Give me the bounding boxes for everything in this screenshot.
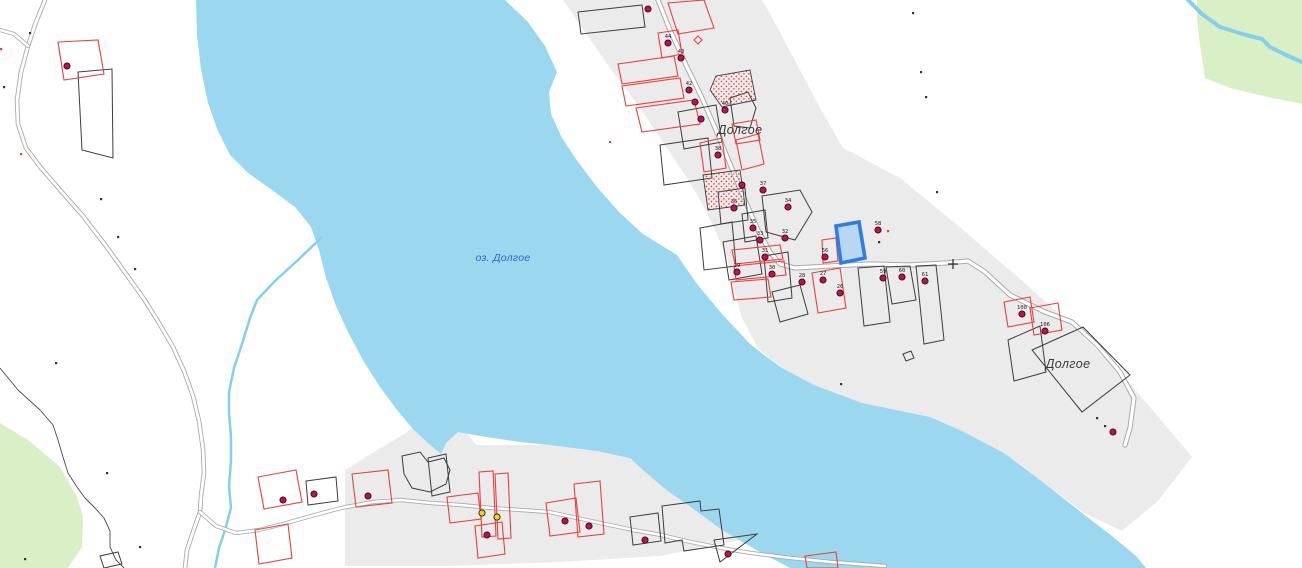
cadastral-point-label: 56 xyxy=(822,248,829,254)
cadastral-point-label: 33 xyxy=(757,231,764,237)
cadastral-point[interactable] xyxy=(762,254,768,260)
cadastral-point[interactable] xyxy=(822,254,828,260)
cadastral-point[interactable] xyxy=(645,6,651,12)
cadastral-point[interactable] xyxy=(820,277,826,283)
cadastral-point[interactable] xyxy=(922,278,928,284)
cadastral-point[interactable] xyxy=(479,510,485,516)
cadastral-point-label: 106 xyxy=(1040,322,1050,328)
cadastral-point-label: 42 xyxy=(686,81,693,87)
cadastral-point[interactable] xyxy=(880,275,886,281)
cadastral-point[interactable] xyxy=(837,290,843,296)
cadastral-point[interactable] xyxy=(1110,429,1116,435)
terrain-mark xyxy=(3,86,5,88)
settlement-label: Долгое xyxy=(716,123,763,137)
cadastral-point[interactable] xyxy=(642,537,648,543)
cadastral-point[interactable] xyxy=(311,491,317,497)
cadastral-point-label: 26 xyxy=(837,284,844,290)
terrain-mark xyxy=(878,241,880,243)
cadastral-point[interactable] xyxy=(875,227,881,233)
cadastral-point-label: 29 xyxy=(734,263,741,269)
terrain-mark xyxy=(887,230,889,232)
cadastral-point-label: 30 xyxy=(769,265,776,271)
cadastral-point[interactable] xyxy=(365,493,371,499)
terrain-mark xyxy=(925,96,927,98)
cadastral-point[interactable] xyxy=(725,551,731,557)
terrain-mark xyxy=(20,153,22,155)
cadastral-point-label: 28 xyxy=(799,273,806,279)
terrain-mark xyxy=(1104,425,1106,427)
cadastral-point-label: 61 xyxy=(922,272,929,278)
cadastral-point[interactable] xyxy=(678,55,684,61)
map-canvas[interactable]: 4443424038373635343332312930282726565859… xyxy=(0,0,1302,568)
map-viewport[interactable]: 4443424038373635343332312930282726565859… xyxy=(0,0,1302,568)
settlement-label: Долгое xyxy=(1044,357,1091,371)
cadastral-point[interactable] xyxy=(1042,328,1048,334)
cadastral-point[interactable] xyxy=(734,269,740,275)
terrain-mark xyxy=(106,472,108,474)
cadastral-point-label: 35 xyxy=(750,219,757,225)
cadastral-point-label: 43 xyxy=(678,49,685,55)
cadastral-point[interactable] xyxy=(739,182,745,188)
cadastral-point-label: 60 xyxy=(899,268,906,274)
cadastral-point[interactable] xyxy=(769,271,775,277)
cadastral-point-label: 31 xyxy=(762,248,769,254)
cadastral-point[interactable] xyxy=(722,107,728,113)
cadastral-point-label: 44 xyxy=(665,34,672,40)
terrain-mark xyxy=(100,198,102,200)
cadastral-point[interactable] xyxy=(586,523,592,529)
terrain-mark xyxy=(117,236,119,238)
terrain-mark xyxy=(936,191,938,193)
terrain-mark xyxy=(840,383,842,385)
cadastral-point[interactable] xyxy=(899,274,905,280)
cadastral-point[interactable] xyxy=(698,116,704,122)
cadastral-point[interactable] xyxy=(782,235,788,241)
terrain-mark xyxy=(29,32,31,34)
cadastral-point[interactable] xyxy=(731,205,737,211)
cadastral-point[interactable] xyxy=(484,532,490,538)
cadastral-point-label: 37 xyxy=(760,181,767,187)
cadastral-point[interactable] xyxy=(665,40,671,46)
cadastral-point-label: 32 xyxy=(782,229,789,235)
cadastral-point[interactable] xyxy=(686,87,692,93)
cadastral-point[interactable] xyxy=(64,63,70,69)
terrain-mark xyxy=(920,71,922,73)
cadastral-point-label: 27 xyxy=(820,271,827,277)
cadastral-point-label: 40 xyxy=(722,101,729,107)
cadastral-point[interactable] xyxy=(692,99,698,105)
selected-parcel[interactable] xyxy=(836,222,865,263)
cadastral-point[interactable] xyxy=(757,237,763,243)
cadastral-point-label: 59 xyxy=(880,269,887,275)
terrain-mark xyxy=(55,362,57,364)
terrain-mark xyxy=(1096,417,1098,419)
cadastral-point-label: 34 xyxy=(785,198,792,204)
cadastral-point-label: 100 xyxy=(1017,305,1027,311)
terrain-mark xyxy=(0,48,2,50)
terrain-mark xyxy=(139,546,141,548)
terrain-mark xyxy=(134,268,136,270)
cadastral-point[interactable] xyxy=(1019,311,1025,317)
land-parcel-dotted[interactable] xyxy=(703,170,745,210)
cadastral-point[interactable] xyxy=(799,279,805,285)
cadastral-point-label: 36 xyxy=(731,199,738,205)
cadastral-point[interactable] xyxy=(280,497,286,503)
terrain-mark xyxy=(24,558,26,560)
terrain-mark xyxy=(609,141,611,143)
cadastral-point-label: 38 xyxy=(715,146,722,152)
cadastral-point[interactable] xyxy=(760,187,766,193)
lake-label: оз. Долгое xyxy=(475,252,530,264)
cadastral-point[interactable] xyxy=(785,204,791,210)
cadastral-point[interactable] xyxy=(562,518,568,524)
cadastral-point-label: 58 xyxy=(875,221,882,227)
cadastral-point[interactable] xyxy=(494,514,500,520)
terrain-mark xyxy=(912,12,914,14)
cadastral-point[interactable] xyxy=(750,225,756,231)
cadastral-point[interactable] xyxy=(715,152,721,158)
